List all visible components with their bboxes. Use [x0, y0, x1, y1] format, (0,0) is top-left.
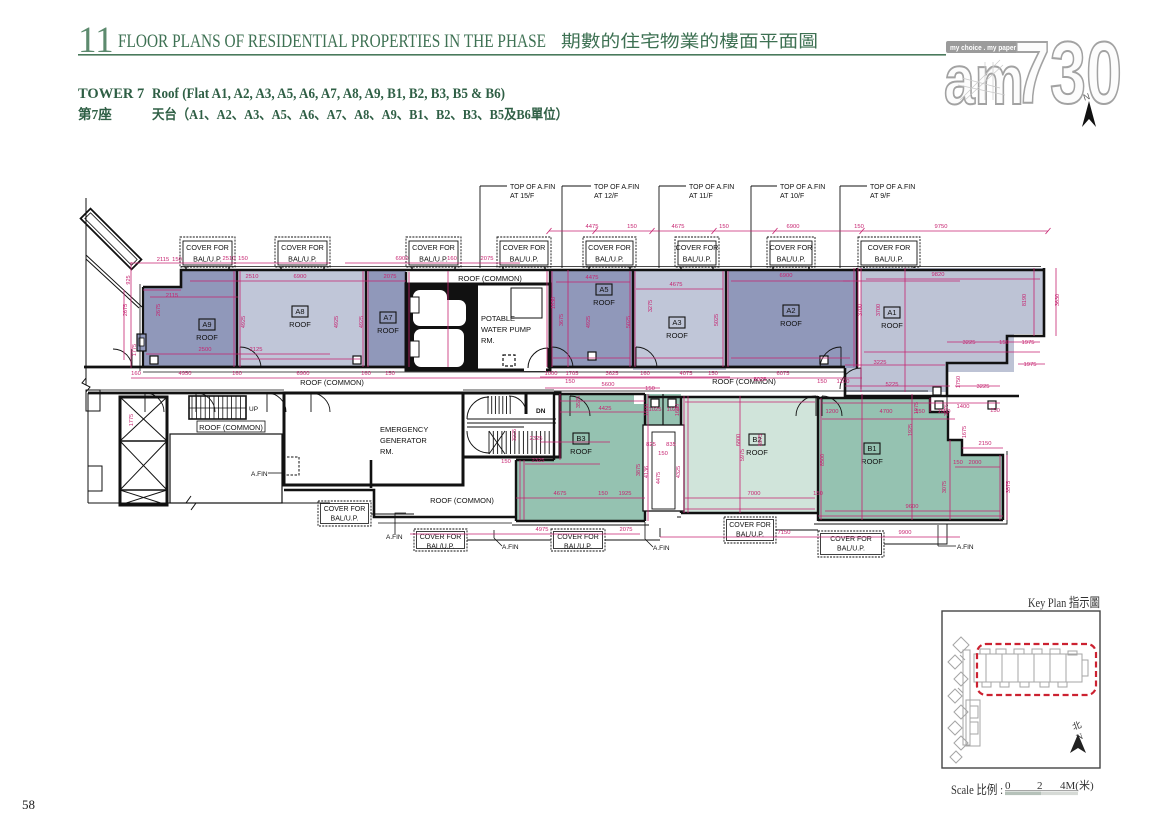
- svg-text:A8: A8: [295, 307, 304, 316]
- svg-text:9820: 9820: [932, 272, 945, 278]
- svg-text:6075: 6075: [777, 371, 790, 377]
- svg-text:1975: 1975: [914, 402, 920, 414]
- svg-text:3075: 3075: [942, 481, 948, 493]
- svg-text:6900: 6900: [297, 371, 310, 377]
- svg-text:4975: 4975: [536, 527, 549, 533]
- svg-text:1975: 1975: [1022, 340, 1035, 346]
- svg-text:160: 160: [640, 371, 650, 377]
- svg-text:ROOF: ROOF: [881, 321, 903, 330]
- svg-text:TOWER 7: TOWER 7: [78, 86, 144, 102]
- svg-text:AT 10/F: AT 10/F: [780, 193, 804, 200]
- svg-text:BAL/U.P.: BAL/U.P.: [875, 255, 904, 264]
- svg-text:1925: 1925: [908, 424, 914, 436]
- svg-text:ROOF: ROOF: [746, 448, 768, 457]
- svg-text:2675: 2675: [123, 304, 129, 316]
- svg-text:5975: 5975: [740, 449, 746, 461]
- svg-text:RM.: RM.: [481, 336, 495, 345]
- svg-text:1025: 1025: [649, 407, 662, 413]
- svg-text:5225: 5225: [886, 382, 899, 388]
- svg-text:FLOOR PLANS OF RESIDENTIAL PRO: FLOOR PLANS OF RESIDENTIAL PROPERTIES IN…: [118, 31, 546, 52]
- svg-text:ROOF (COMMON): ROOF (COMMON): [458, 274, 522, 283]
- svg-text:BAL/U.P.: BAL/U.P.: [510, 255, 539, 264]
- svg-text:4475: 4475: [586, 224, 599, 230]
- svg-text:3225: 3225: [963, 340, 976, 346]
- svg-text:A.FIN: A.FIN: [957, 544, 974, 551]
- svg-text:AT 12/F: AT 12/F: [594, 193, 618, 200]
- svg-text:TOP OF A.FIN: TOP OF A.FIN: [870, 184, 915, 191]
- svg-text:2075: 2075: [481, 256, 494, 262]
- svg-text:825: 825: [646, 442, 656, 448]
- svg-text:3625: 3625: [606, 371, 619, 377]
- svg-text:3225: 3225: [977, 384, 990, 390]
- svg-text:2325: 2325: [530, 436, 543, 442]
- svg-text:150: 150: [708, 371, 718, 377]
- svg-text:150: 150: [953, 460, 963, 466]
- svg-text:ROOF: ROOF: [861, 457, 883, 466]
- svg-text:A.FIN: A.FIN: [653, 545, 670, 552]
- svg-text:A3: A3: [672, 318, 681, 327]
- svg-text:150: 150: [565, 379, 575, 385]
- svg-text:TOP OF A.FIN: TOP OF A.FIN: [689, 184, 734, 191]
- svg-text:1925: 1925: [619, 491, 632, 497]
- svg-text:2115: 2115: [157, 257, 169, 263]
- svg-text:BAL/U.P.: BAL/U.P.: [595, 255, 624, 264]
- svg-text:COVER FOR: COVER FOR: [186, 243, 229, 252]
- svg-text:4925: 4925: [586, 316, 592, 328]
- svg-text:7000: 7000: [748, 491, 761, 497]
- svg-text:Scale 比例 :: Scale 比例 :: [951, 783, 1003, 797]
- svg-text:1775: 1775: [129, 414, 135, 426]
- svg-text:TOP OF A.FIN: TOP OF A.FIN: [594, 184, 639, 191]
- svg-text:4475: 4475: [656, 472, 662, 484]
- svg-text:835: 835: [666, 442, 676, 448]
- svg-text:UP: UP: [249, 406, 258, 413]
- svg-text:925: 925: [126, 275, 132, 284]
- svg-text:第7座: 第7座: [78, 106, 112, 122]
- svg-text:6900: 6900: [396, 256, 409, 262]
- svg-text:A5: A5: [599, 285, 608, 294]
- svg-text:COVER FOR: COVER FOR: [503, 243, 546, 252]
- svg-text:AT 9/F: AT 9/F: [870, 193, 890, 200]
- svg-text:3700: 3700: [876, 304, 882, 316]
- svg-text:COVER FOR: COVER FOR: [676, 243, 719, 252]
- svg-text:2000: 2000: [969, 460, 982, 466]
- svg-text:150: 150: [990, 408, 1000, 414]
- svg-text:9750: 9750: [935, 224, 948, 230]
- svg-text:A9: A9: [202, 320, 211, 329]
- svg-text:3675: 3675: [559, 314, 565, 326]
- svg-text:BAL/U.P.: BAL/U.P.: [427, 544, 455, 551]
- svg-text:COVER FOR: COVER FOR: [281, 243, 324, 252]
- svg-text:150: 150: [385, 371, 395, 377]
- svg-text:ROOF: ROOF: [593, 298, 615, 307]
- svg-text:A.FIN: A.FIN: [386, 534, 403, 541]
- svg-text:BAL/U.P.: BAL/U.P.: [331, 516, 359, 523]
- svg-text:A7: A7: [383, 313, 392, 322]
- svg-text:COVER FOR: COVER FOR: [412, 243, 455, 252]
- svg-text:150: 150: [999, 340, 1009, 346]
- svg-text:8500: 8500: [820, 454, 826, 466]
- svg-text:150: 150: [817, 379, 827, 385]
- svg-text:2675: 2675: [156, 304, 162, 316]
- svg-text:A2: A2: [786, 306, 795, 315]
- svg-text:4325: 4325: [676, 466, 682, 478]
- svg-text:8025: 8025: [754, 377, 767, 383]
- svg-text:WATER PUMP: WATER PUMP: [481, 325, 531, 334]
- svg-text:1000: 1000: [545, 371, 558, 377]
- svg-text:ROOF (COMMON): ROOF (COMMON): [199, 423, 263, 432]
- svg-text:150: 150: [658, 451, 668, 457]
- svg-text:150: 150: [627, 224, 637, 230]
- svg-text:COVER FOR: COVER FOR: [868, 243, 911, 252]
- svg-text:4425: 4425: [599, 406, 612, 412]
- svg-text:3575: 3575: [1006, 481, 1012, 493]
- svg-text:1775: 1775: [132, 344, 138, 356]
- svg-text:A.FIN: A.FIN: [251, 471, 268, 478]
- svg-text:5025: 5025: [626, 316, 632, 328]
- svg-text:2500: 2500: [199, 347, 212, 353]
- svg-text:4925: 4925: [334, 316, 340, 328]
- svg-text:730: 730: [1014, 23, 1122, 122]
- svg-text:Roof (Flat A1, A2, A3, A5, A6,: Roof (Flat A1, A2, A3, A5, A6, A7, A8, A…: [152, 86, 505, 102]
- svg-text:4136: 4136: [644, 466, 650, 478]
- svg-text:150: 150: [813, 491, 823, 497]
- svg-text:4700: 4700: [880, 409, 893, 415]
- svg-text:BAL/U.P.: BAL/U.P.: [288, 255, 317, 264]
- svg-text:GENERATOR: GENERATOR: [380, 436, 427, 445]
- svg-text:6800: 6800: [736, 434, 742, 446]
- svg-text:1705: 1705: [566, 371, 579, 377]
- svg-text:160: 160: [232, 371, 242, 377]
- svg-text:A.FIN: A.FIN: [502, 544, 519, 551]
- svg-text:58: 58: [22, 797, 35, 812]
- svg-text:4675: 4675: [672, 224, 685, 230]
- svg-text:6900: 6900: [780, 273, 793, 279]
- svg-text:ROOF: ROOF: [666, 331, 688, 340]
- svg-text:2075: 2075: [620, 527, 633, 533]
- svg-text:ROOF: ROOF: [289, 320, 311, 329]
- svg-text:1400: 1400: [957, 404, 970, 410]
- svg-text:2075: 2075: [384, 274, 397, 280]
- svg-text:1200: 1200: [826, 409, 839, 415]
- svg-text:COVER FOR: COVER FOR: [588, 243, 631, 252]
- svg-text:A1: A1: [887, 308, 896, 317]
- svg-text:8975: 8975: [758, 434, 764, 446]
- svg-text:COVER FOR: COVER FOR: [324, 506, 366, 513]
- svg-text:ROOF (COMMON): ROOF (COMMON): [300, 378, 364, 387]
- svg-text:B1: B1: [867, 444, 876, 453]
- svg-text:4925: 4925: [241, 316, 247, 328]
- svg-text:1830: 1830: [551, 297, 557, 309]
- svg-text:COVER FOR: COVER FOR: [420, 534, 462, 541]
- svg-text:ROOF: ROOF: [196, 333, 218, 342]
- svg-text:1975: 1975: [1024, 362, 1037, 368]
- svg-text:期數的住宅物業的樓面平面圖: 期數的住宅物業的樓面平面圖: [561, 32, 818, 51]
- svg-text:4075: 4075: [680, 371, 693, 377]
- svg-text:TOP OF A.FIN: TOP OF A.FIN: [510, 184, 555, 191]
- svg-text:7150: 7150: [778, 530, 791, 536]
- svg-text:3875: 3875: [636, 464, 642, 476]
- svg-text:4675: 4675: [554, 491, 567, 497]
- svg-text:3275: 3275: [944, 404, 950, 416]
- svg-text:4675: 4675: [670, 282, 683, 288]
- svg-text:5600: 5600: [602, 382, 615, 388]
- svg-text:2125: 2125: [250, 347, 263, 353]
- svg-text:COVER FOR: COVER FOR: [729, 522, 771, 529]
- svg-text:3225: 3225: [512, 429, 518, 441]
- svg-text:160: 160: [447, 256, 457, 262]
- svg-text:4475: 4475: [586, 275, 599, 281]
- svg-text:BAL/U.P.: BAL/U.P.: [193, 255, 222, 264]
- svg-text:ROOF: ROOF: [377, 326, 399, 335]
- svg-text:POTABLE: POTABLE: [481, 314, 515, 323]
- svg-text:150: 150: [645, 386, 655, 392]
- svg-text:150: 150: [598, 491, 608, 497]
- svg-text:160: 160: [131, 371, 141, 377]
- svg-text:9600: 9600: [906, 504, 919, 510]
- svg-text:Key Plan 指示圖: Key Plan 指示圖: [1028, 595, 1100, 610]
- svg-text:am: am: [944, 41, 1024, 119]
- svg-text:2325: 2325: [532, 458, 545, 464]
- svg-text:BAL/U.P.: BAL/U.P.: [564, 544, 592, 551]
- svg-text:8190: 8190: [1022, 294, 1028, 306]
- svg-text:3225: 3225: [874, 360, 887, 366]
- svg-text:9900: 9900: [899, 530, 912, 536]
- svg-text:2115: 2115: [166, 293, 178, 299]
- svg-text:150: 150: [172, 257, 182, 263]
- svg-text:3630: 3630: [1055, 294, 1061, 306]
- svg-text:3275: 3275: [648, 300, 654, 312]
- svg-text:天台（A1、A2、A3、A5、A6、A7、A8、A9、B1、: 天台（A1、A2、A3、A5、A6、A7、A8、A9、B1、B2、B3、B5及B…: [152, 106, 568, 122]
- svg-text:2150: 2150: [979, 441, 992, 447]
- svg-text:DN: DN: [536, 408, 546, 415]
- svg-text:COVER FOR: COVER FOR: [770, 243, 813, 252]
- svg-text:150: 150: [501, 459, 511, 465]
- svg-text:1200: 1200: [837, 379, 850, 385]
- svg-text:BAL/U.P.: BAL/U.P.: [777, 255, 806, 264]
- svg-text:BAL/U.P.: BAL/U.P.: [837, 546, 865, 553]
- svg-text:5025: 5025: [714, 314, 720, 326]
- svg-text:1675: 1675: [962, 426, 968, 438]
- svg-text:ROOF (COMMON): ROOF (COMMON): [430, 496, 494, 505]
- svg-text:BAL/U.P.: BAL/U.P.: [736, 532, 764, 539]
- svg-text:160: 160: [361, 371, 371, 377]
- svg-text:3525: 3525: [576, 396, 582, 408]
- svg-text:4M(米): 4M(米): [1060, 779, 1094, 792]
- svg-text:6900: 6900: [294, 274, 307, 280]
- svg-text:4950: 4950: [179, 371, 192, 377]
- svg-text:150: 150: [854, 224, 864, 230]
- svg-text:ROOF: ROOF: [570, 447, 592, 456]
- svg-text:4925: 4925: [359, 316, 365, 328]
- svg-text:6900: 6900: [787, 224, 800, 230]
- svg-text:AT 11/F: AT 11/F: [689, 193, 713, 200]
- svg-text:RM.: RM.: [380, 447, 394, 456]
- svg-text:BAL/U.P.: BAL/U.P.: [419, 255, 448, 264]
- svg-text:2510: 2510: [223, 256, 236, 262]
- svg-text:BAL/U.P.: BAL/U.P.: [683, 255, 712, 264]
- svg-text:TOP OF A.FIN: TOP OF A.FIN: [780, 184, 825, 191]
- svg-text:150: 150: [719, 224, 729, 230]
- svg-text:1750: 1750: [956, 376, 962, 388]
- svg-text:AT 15/F: AT 15/F: [510, 193, 534, 200]
- svg-text:EMERGENCY: EMERGENCY: [380, 425, 428, 434]
- svg-text:150: 150: [238, 256, 248, 262]
- svg-text:2510: 2510: [246, 274, 259, 280]
- svg-text:COVER FOR: COVER FOR: [557, 534, 599, 541]
- svg-text:1600: 1600: [675, 404, 681, 416]
- svg-text:ROOF: ROOF: [780, 319, 802, 328]
- svg-text:1600: 1600: [644, 404, 650, 416]
- svg-text:3700: 3700: [858, 304, 864, 316]
